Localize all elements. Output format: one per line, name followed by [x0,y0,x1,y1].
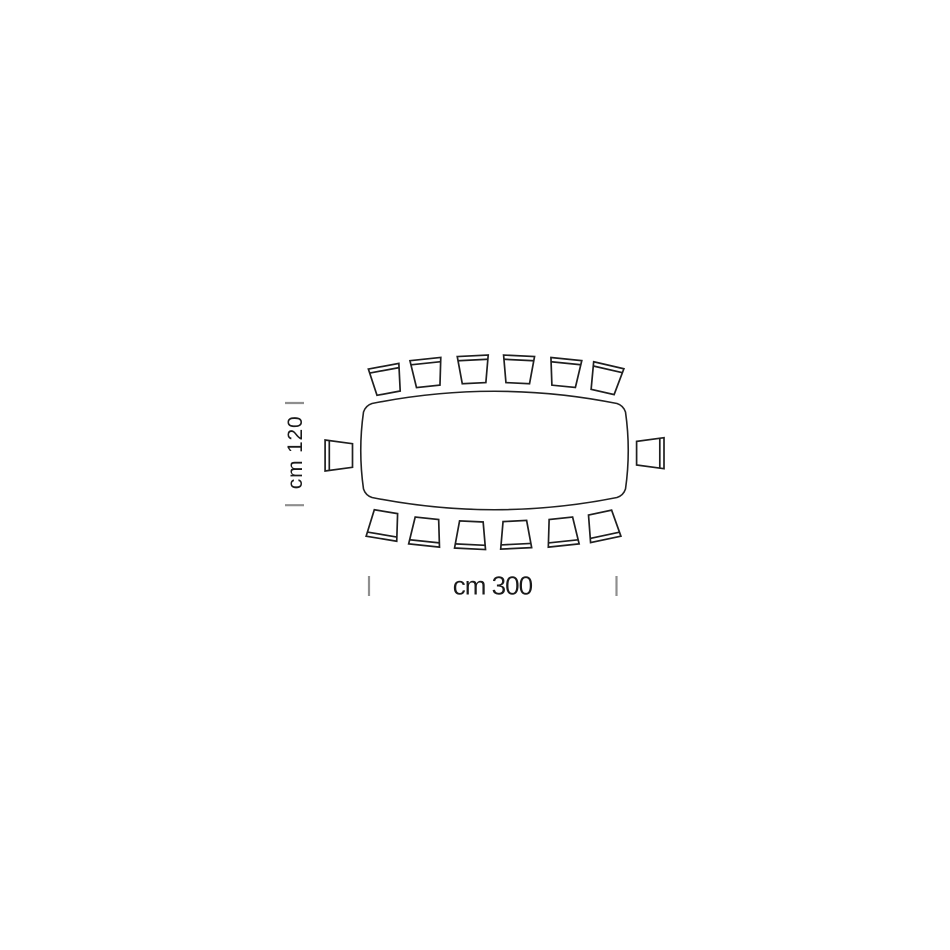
svg-text:cm 300: cm 300 [453,571,533,601]
svg-text:cm 120: cm 120 [284,416,307,490]
